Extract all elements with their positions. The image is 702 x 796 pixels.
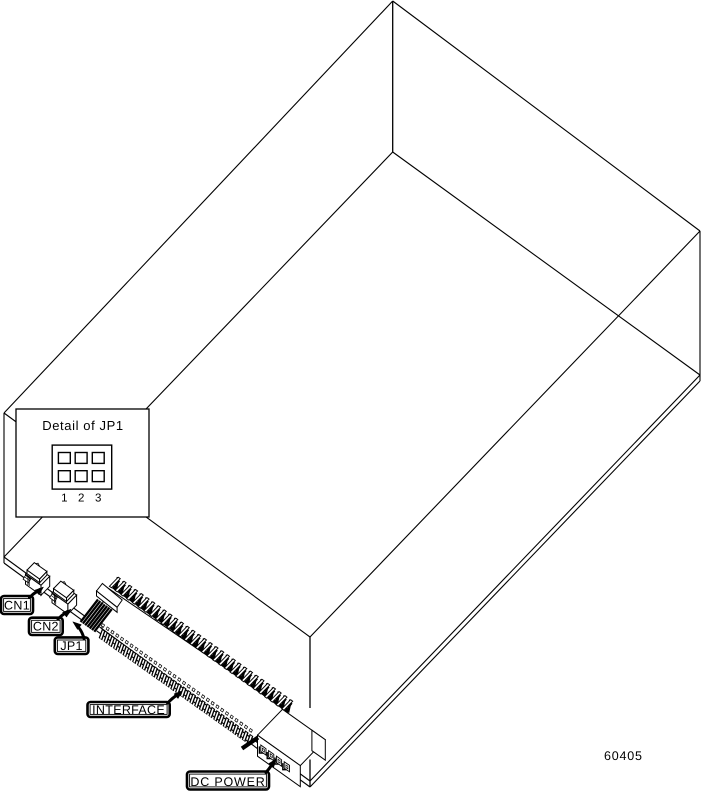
svg-text:INTERFACE: INTERFACE — [92, 703, 165, 717]
svg-text:60405: 60405 — [604, 749, 643, 763]
svg-text:Detail of JP1: Detail of JP1 — [42, 418, 124, 433]
svg-text:CN2: CN2 — [33, 620, 59, 634]
svg-text:DC POWER: DC POWER — [190, 775, 265, 789]
svg-text:CN1: CN1 — [4, 598, 30, 612]
svg-text:2: 2 — [78, 493, 84, 505]
svg-text:1: 1 — [61, 493, 67, 505]
svg-text:3: 3 — [95, 493, 101, 505]
svg-text:JP1: JP1 — [60, 639, 82, 653]
